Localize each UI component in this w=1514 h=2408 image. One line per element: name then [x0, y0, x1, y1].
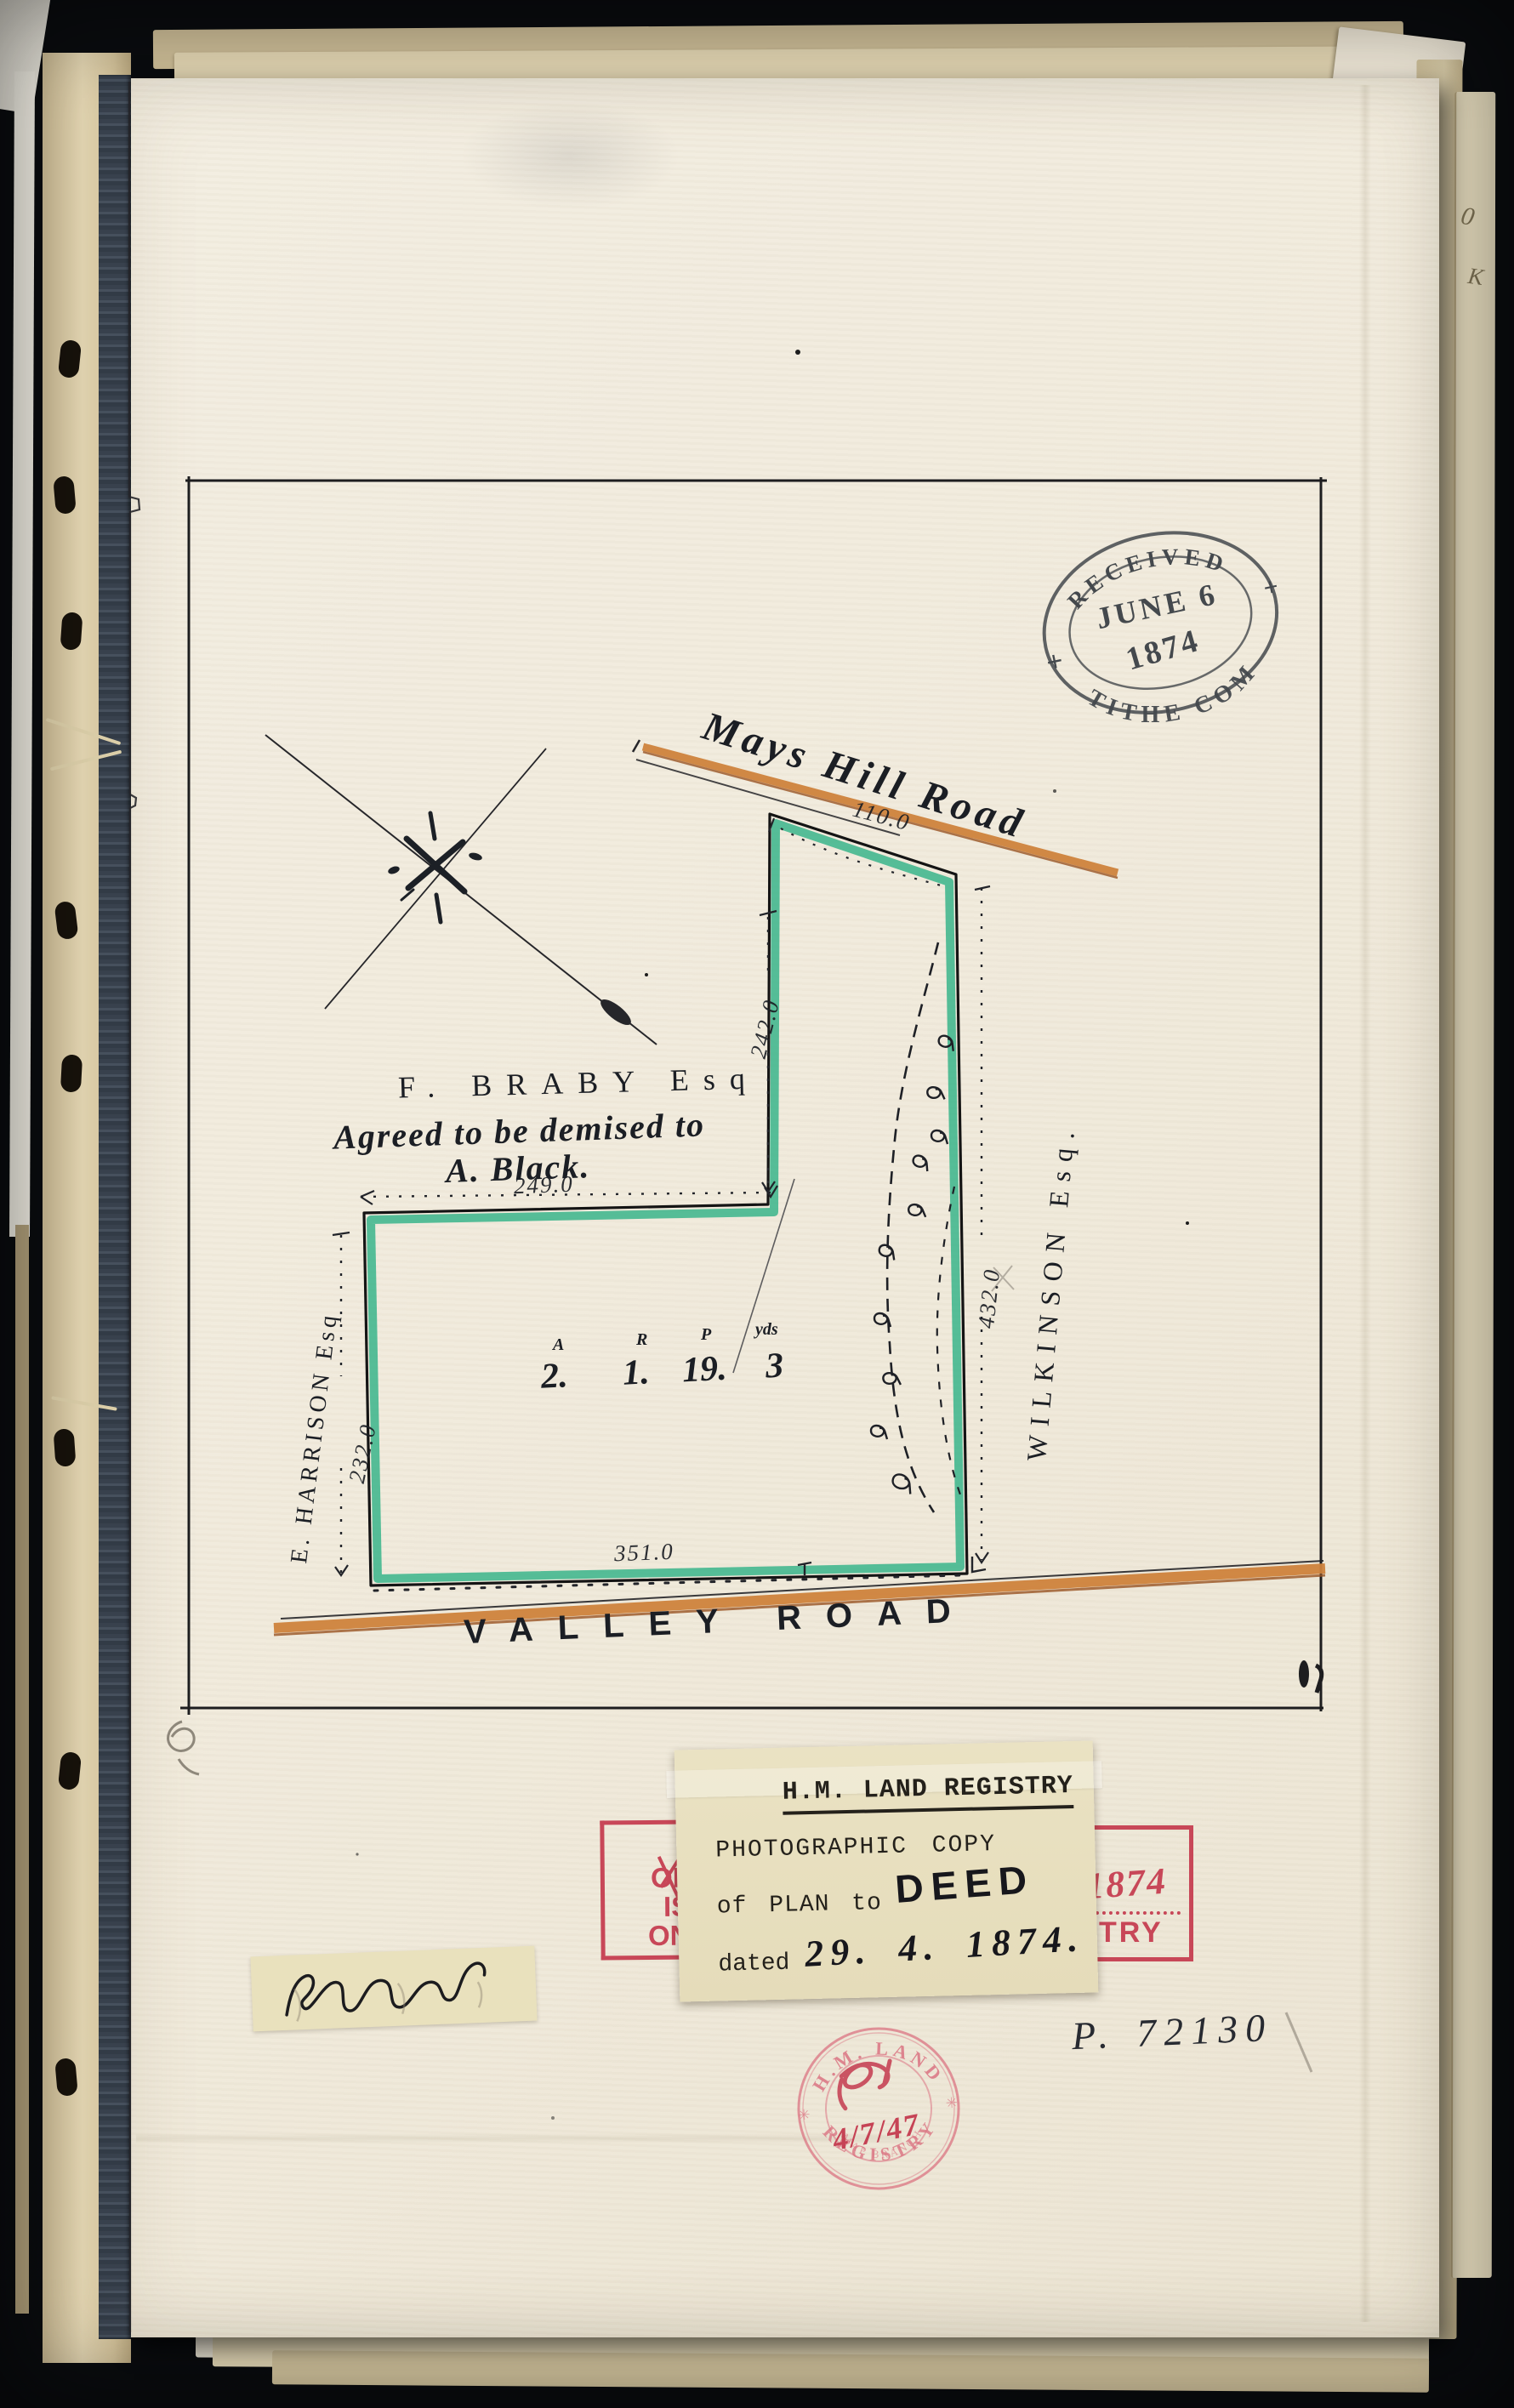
dim-351: 351.0: [613, 1539, 674, 1567]
inked-page-edge-band: [99, 75, 131, 2339]
area-value-perches: 19.: [681, 1348, 728, 1392]
scanned-deed-page: RECEIVED JUNE 6 1874 TITHE COM + + Mays …: [0, 0, 1514, 2408]
stitch-hole: [60, 612, 83, 651]
label-handwritten-deed: DEED: [894, 1856, 1036, 1912]
spine-paper-edge-lower: [15, 1225, 29, 2314]
reference-number: P. 72130: [1071, 2005, 1273, 2058]
stamp-cross-left: +: [1044, 645, 1067, 679]
label-of-plan-to: of PLAN to: [717, 1890, 883, 1920]
area-value-roods: 1.: [622, 1352, 651, 1394]
stitch-hole: [53, 1428, 76, 1467]
label-photographic-copy: PHOTOGRAPHIC COPY: [715, 1831, 996, 1864]
stamp-cross-right: +: [1261, 572, 1281, 603]
cross-out-squiggle: [250, 1946, 537, 2032]
area-header-perches: P: [701, 1325, 711, 1345]
red-stamp-dotted-line: [1082, 1911, 1181, 1915]
under-page-edge-bottom2: [272, 2350, 1429, 2392]
stitch-hole: [53, 475, 77, 515]
spine-paper-edge: [9, 71, 35, 1237]
round-stamp-star-left: ✳: [798, 2107, 811, 2124]
red-stamp-year: 1874: [1084, 1859, 1168, 1909]
stitch-hole: [60, 1054, 83, 1092]
area-header-roods: R: [636, 1330, 647, 1350]
received-stamp-year: 1874: [1122, 623, 1204, 678]
label-handwritten-date: 29. 4. 1874.: [804, 1916, 1085, 1976]
area-value-yards: 3: [765, 1345, 784, 1386]
red-stamp-word: TRY: [1099, 1916, 1164, 1950]
label-dated: dated: [718, 1950, 790, 1978]
land-registry-label: H.M. LAND REGISTRY PHOTOGRAPHIC COPY of …: [674, 1740, 1099, 2001]
under-page-edge-right2: [1451, 92, 1495, 2278]
dim-249: 249.0: [513, 1171, 574, 1199]
stitch-hole: [54, 2058, 78, 2097]
area-value-acres: 2.: [540, 1355, 569, 1398]
label-title: H.M. LAND REGISTRY: [782, 1772, 1073, 1815]
area-header-yards: yds: [755, 1320, 778, 1340]
red-stamp-fragment-right: 1874 TRY: [1094, 1825, 1193, 1961]
area-header-acres: A: [553, 1335, 564, 1355]
round-stamp-star-right: ✳: [945, 2095, 959, 2112]
tape-strip-crossed-out: [250, 1946, 537, 2032]
round-registry-stamp: H.M. LAND REGISTRY MAP BRANCH ✳ ✳ 4/7/47: [785, 2015, 972, 2202]
